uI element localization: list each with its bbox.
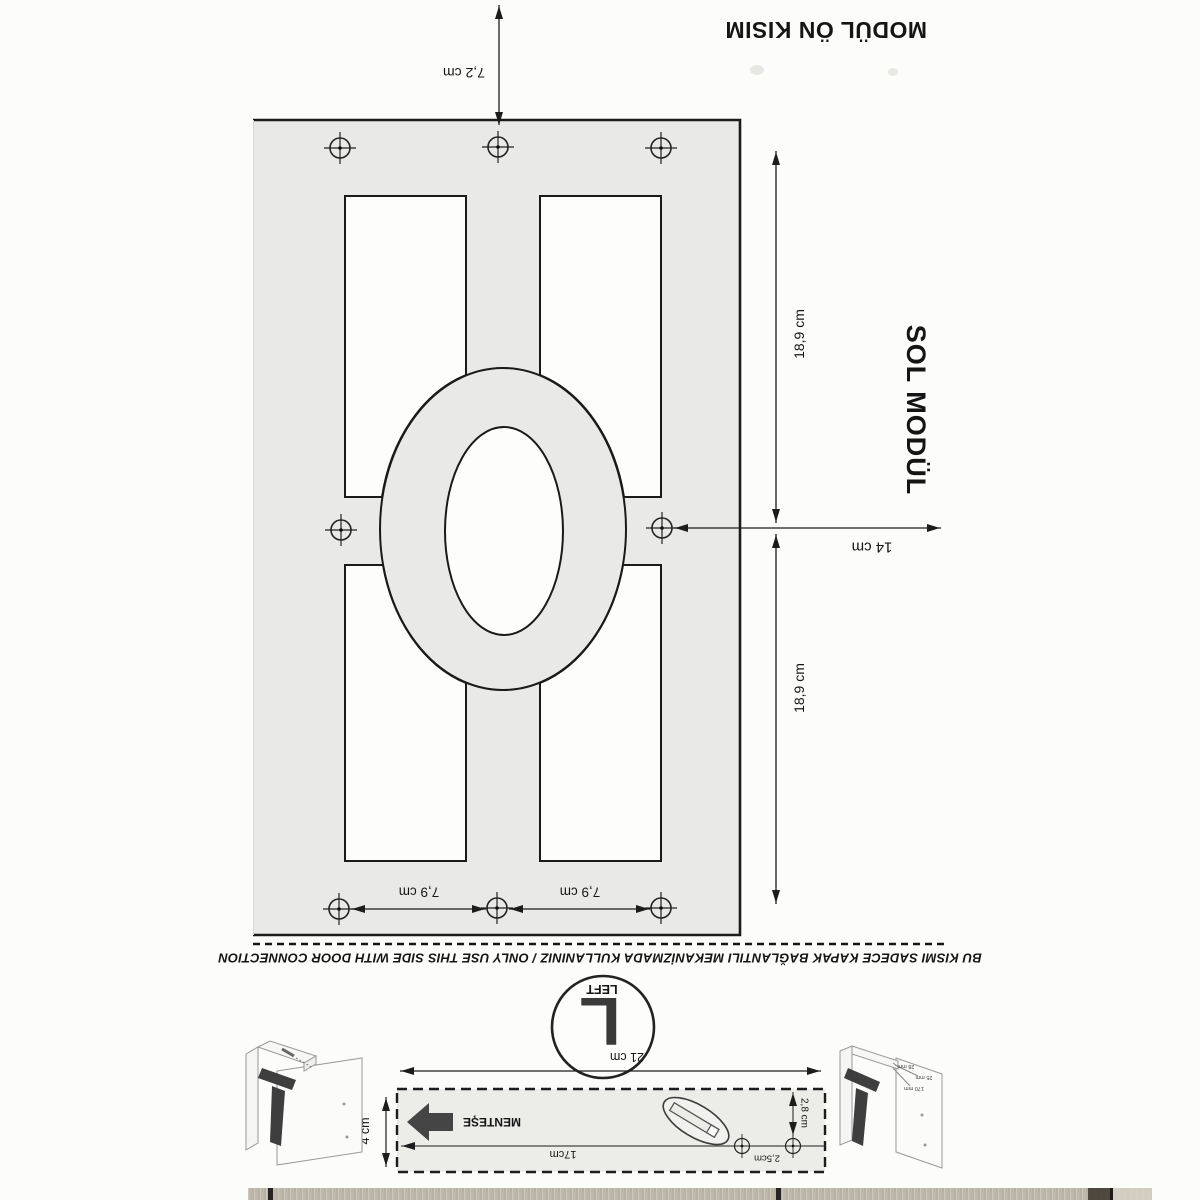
dimension-label-21: 21 cm (610, 1050, 644, 1064)
page-title: MODÜL ÖN KISIM (725, 17, 927, 43)
cabinet-diagram-left (246, 1041, 362, 1165)
module-side-title: SOL MODÜL (901, 325, 931, 496)
diagram-label-170mm: 170 mm (904, 1085, 924, 1091)
pilot-hole-dot (921, 1114, 924, 1117)
dimension-label-7-2: 7,2 cm (443, 65, 485, 81)
dimension-label-18-9-lower: 18,9 cm (791, 663, 807, 713)
dimension-top-edge (495, 5, 503, 125)
dimension-label-7-9-right: 7,9 cm (560, 885, 601, 900)
cabinet-diagram-right: 28 mm 25 mm 170 mm (840, 1046, 942, 1168)
diagram-label-25mm: 25 mm (915, 1074, 932, 1080)
diagram-label-28mm: 28 mm (897, 1063, 914, 1069)
badge-word-left: LEFT (586, 982, 618, 996)
dimension-label-14: 14 cm (852, 539, 893, 556)
door-panel (277, 1058, 362, 1165)
inner-oval-cutout (445, 427, 563, 635)
side-panel (840, 1046, 852, 1145)
scanned-template-page: MODÜL ÖN KISIM SOL MODÜL 7,2 cm 18,9 cm … (0, 0, 1200, 1200)
dimension-right-lower (772, 534, 780, 904)
wood-strip (248, 1188, 1152, 1200)
separator-note: BU KISMI SADECE KAPAK BAĞLANTILI MEKANİZ… (218, 951, 982, 966)
paper-smudge (888, 68, 898, 76)
pilot-hole-dot (343, 1103, 346, 1106)
dimension-strip-height (382, 1097, 390, 1167)
paper-smudge (750, 65, 764, 75)
pilot-hole-dot (346, 1136, 349, 1139)
hinge-arrow-label: MENTEŞE (463, 1115, 521, 1129)
wood-knot-mark (1110, 1188, 1113, 1200)
dimension-label-18-9-upper: 18,9 cm (791, 309, 807, 359)
hinge-leg (852, 1088, 868, 1146)
wood-light-grain (1113, 1188, 1152, 1200)
wood-knot-mark (776, 1188, 781, 1200)
furniture-drill-template-drawing: MODÜL ÖN KISIM SOL MODÜL 7,2 cm 18,9 cm … (0, 0, 1200, 1200)
pilot-hole-dot (924, 1144, 927, 1147)
template-sheet (253, 65, 898, 936)
dimension-label-17: 17cm (550, 1148, 577, 1160)
dimension-right-upper (772, 151, 780, 523)
wood-knot-mark (268, 1188, 273, 1200)
top-panel (852, 1046, 898, 1069)
dimension-label-7-9-left: 7,9 cm (399, 885, 440, 900)
wood-dark-grain (1088, 1188, 1110, 1200)
side-panel (246, 1047, 258, 1150)
dimension-label-2-5: 2,5cm (754, 1153, 780, 1164)
dimension-label-2-8: 2,8 cm (799, 1098, 810, 1128)
